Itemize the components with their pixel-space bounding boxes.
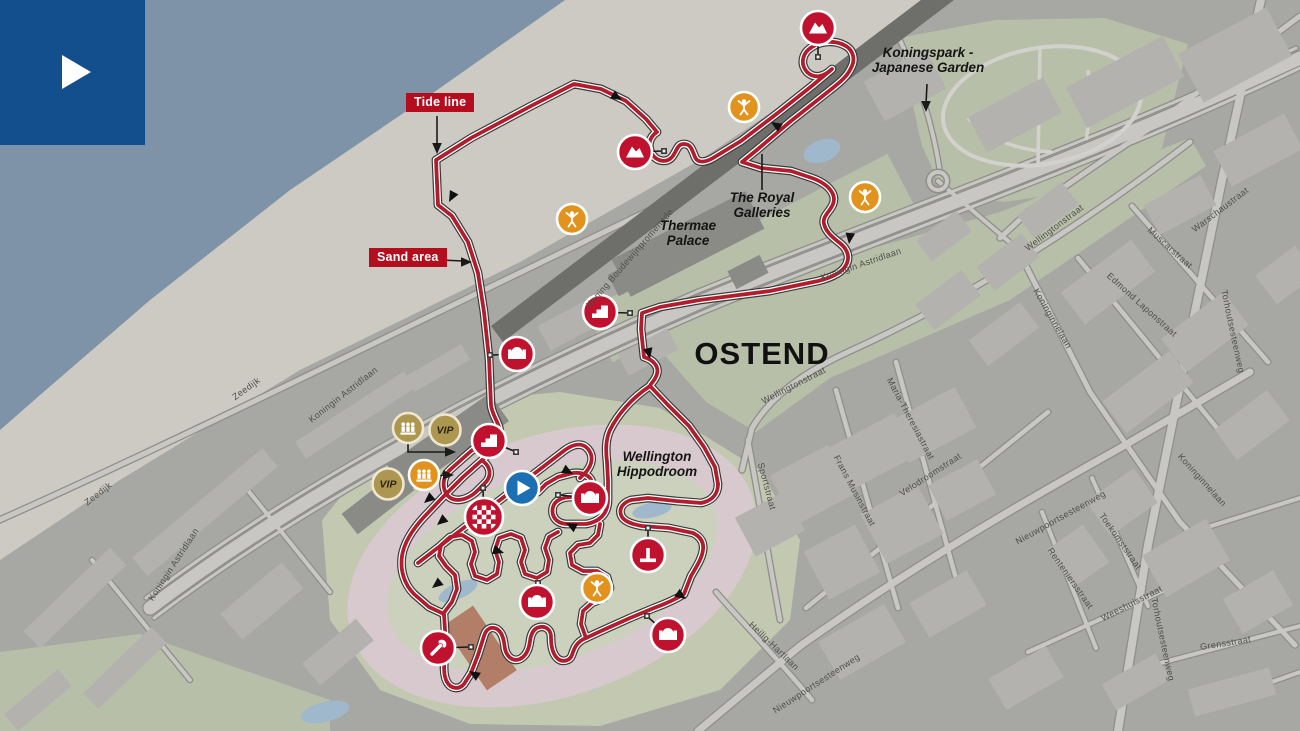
svg-text:VIP: VIP — [380, 479, 398, 491]
place-label: ThermaePalace — [660, 218, 717, 248]
fan-zone-icon — [850, 182, 880, 212]
tide-line-tag: Tide line — [406, 93, 474, 112]
vip-icon: VIP — [373, 469, 404, 500]
bridge-icon — [651, 618, 685, 652]
play-icon — [0, 0, 145, 145]
finish-flag-icon — [465, 498, 503, 536]
barrier-icon — [631, 538, 665, 572]
place-label: Koningspark -Japanese Garden — [872, 45, 985, 75]
course-map: VIPVIPZeedijkZeedijkKoningin AstridlaanK… — [0, 0, 1300, 731]
fan-zone-icon — [557, 204, 587, 234]
place-label: WellingtonHippodroom — [617, 449, 697, 479]
sand-dune-icon — [801, 11, 835, 45]
svg-text:VIP: VIP — [437, 425, 455, 437]
place-label: The RoyalGalleries — [730, 190, 795, 220]
vip-icon: VIP — [430, 415, 461, 446]
map-canvas: VIPVIPZeedijkZeedijkKoningin AstridlaanK… — [0, 0, 1300, 731]
sand-area-tag: Sand area — [369, 248, 447, 267]
sand-dune-icon — [618, 135, 652, 169]
bridge-icon — [520, 585, 554, 619]
bridge-icon — [573, 481, 607, 515]
grandstand-icon — [409, 460, 439, 490]
city-label: OSTEND — [694, 336, 829, 371]
pit-material-icon — [421, 631, 455, 665]
stairs-icon — [472, 424, 506, 458]
start-icon — [505, 471, 539, 505]
broadcaster-logo — [0, 0, 145, 145]
grandstand-icon — [393, 413, 423, 443]
bridge-icon — [500, 337, 534, 371]
fan-zone-icon — [582, 573, 612, 603]
fan-zone-icon — [729, 92, 759, 122]
